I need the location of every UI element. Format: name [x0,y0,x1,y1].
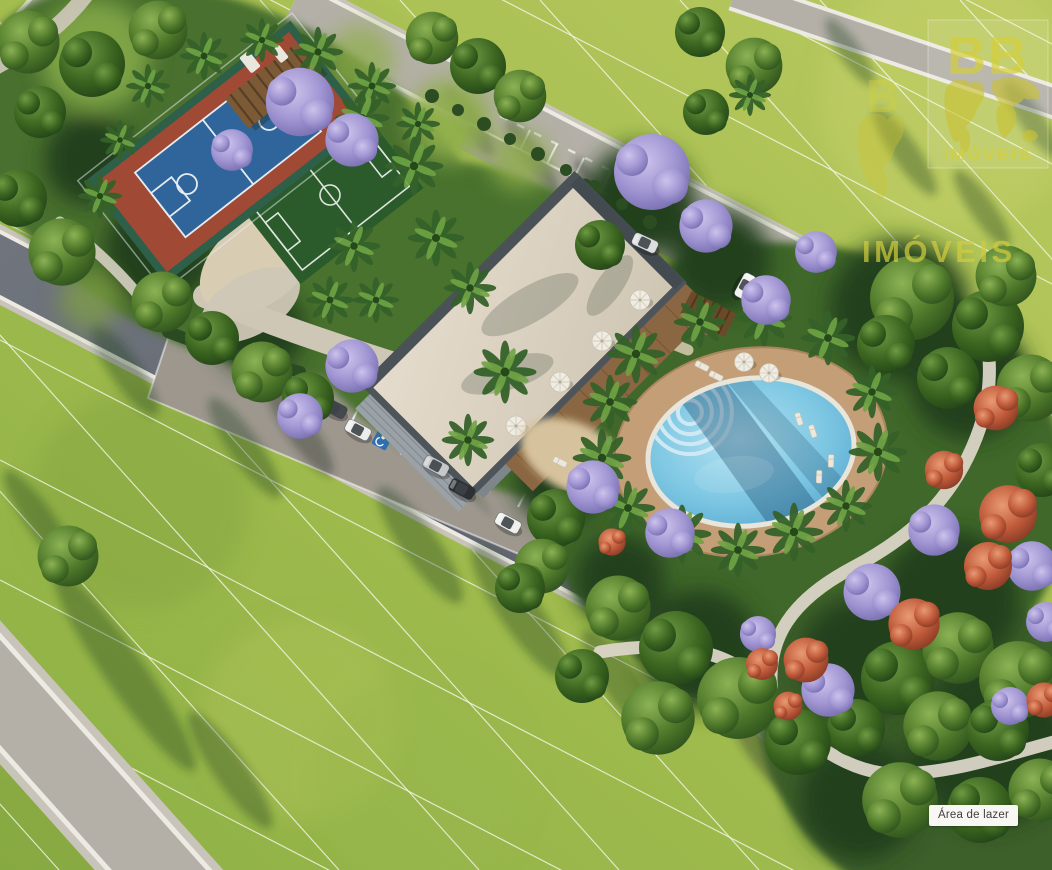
watermark-brand: BB [947,26,1029,86]
watermark-wordmark: IMÓVEIS [944,145,1032,164]
aerial-render: B BB IMÓVEIS IMÓVEIS Área de lazer [0,0,1052,870]
area-label-text: Área de lazer [938,809,1009,821]
watermark-logo: BB IMÓVEIS [928,20,1048,168]
site-plan-illustration: B BB IMÓVEIS IMÓVEIS [0,0,1052,870]
watermark-wordmark-large: IMÓVEIS [862,233,1016,269]
area-label-chip: Área de lazer [929,805,1018,826]
watermark-brand-partial: B [866,70,899,122]
